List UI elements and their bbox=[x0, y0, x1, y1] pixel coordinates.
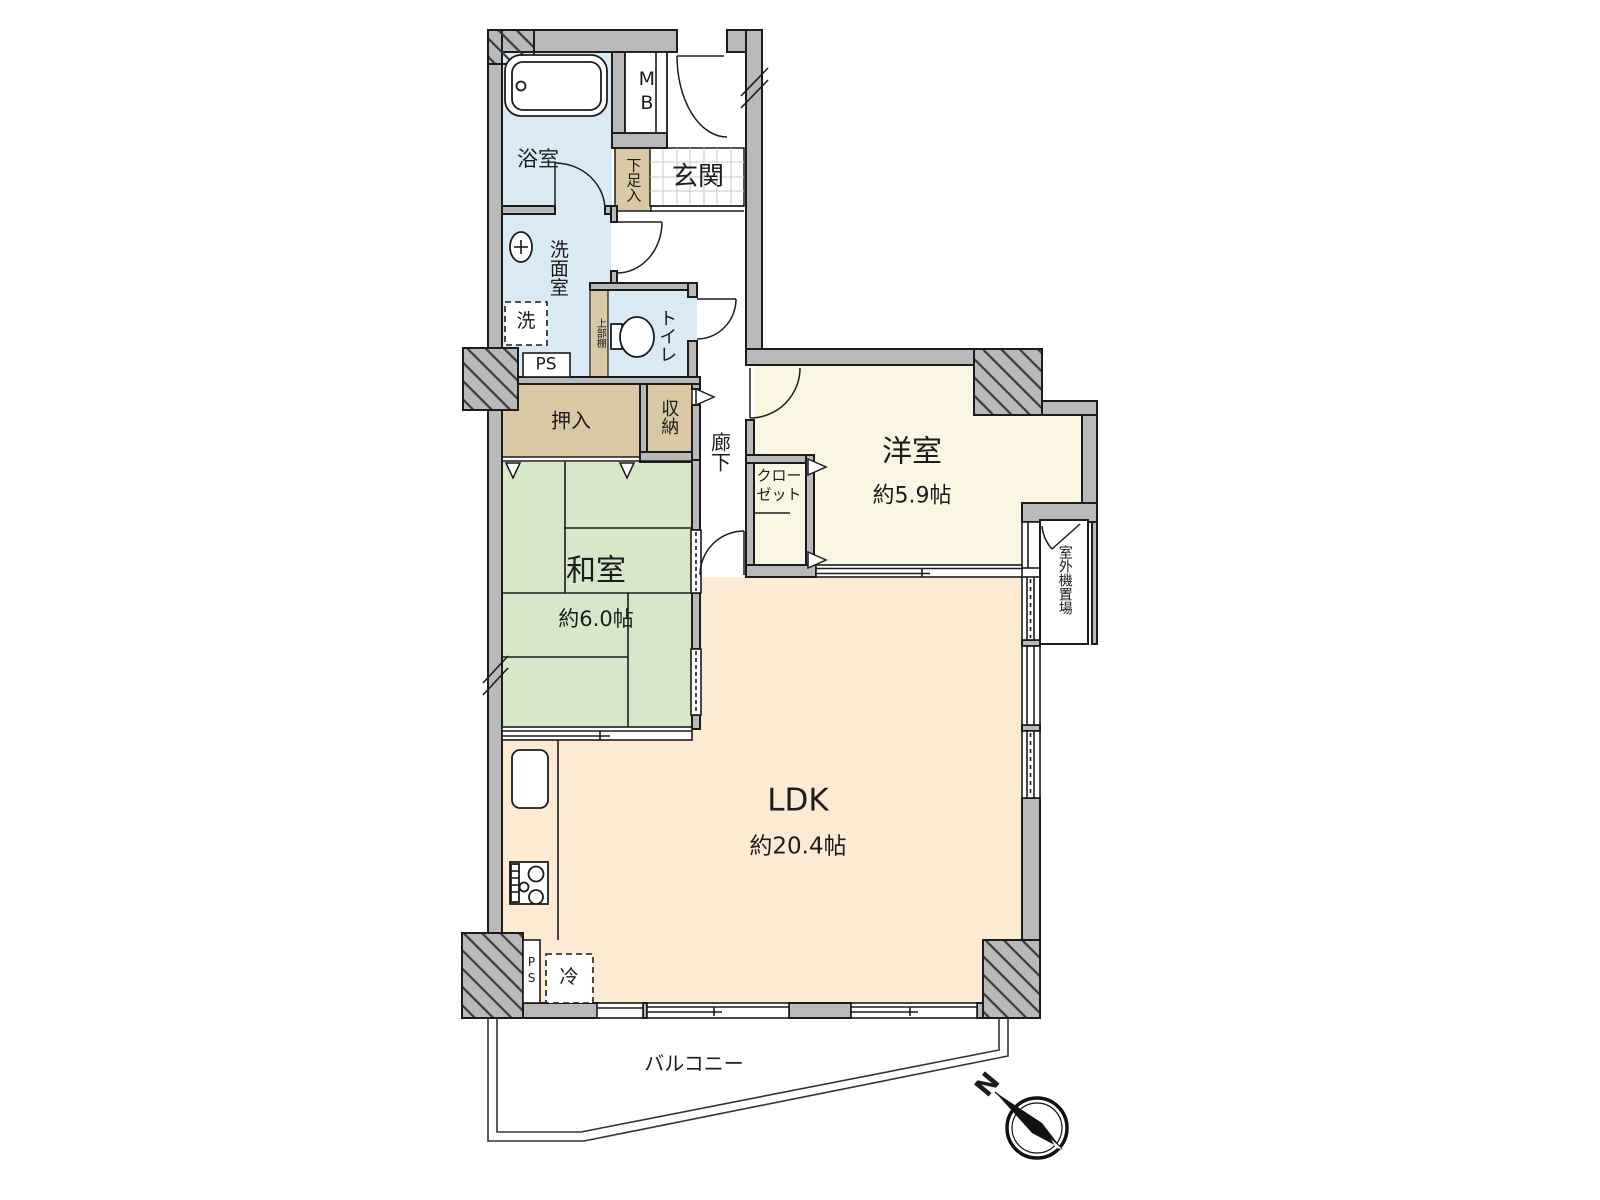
bathtub-drain bbox=[517, 82, 526, 91]
window-bottom-small bbox=[597, 1003, 643, 1018]
stove-grill bbox=[511, 864, 519, 902]
label-storage: 収納 bbox=[657, 399, 680, 435]
toilet-door-arc bbox=[697, 299, 736, 339]
wall-left bbox=[488, 30, 502, 1005]
wall-western-topright bbox=[1041, 401, 1097, 415]
label-ldk-area: 約20.4帖 bbox=[749, 833, 846, 862]
label-hallway: 廊下 bbox=[707, 432, 732, 472]
window-western-right bbox=[1022, 522, 1040, 568]
wall-window-divider-b bbox=[1022, 725, 1040, 731]
wall-bump-left-lower-hatch bbox=[462, 933, 523, 1018]
storage-arrow bbox=[696, 389, 714, 405]
stove-burner-2 bbox=[520, 883, 529, 892]
balcony-outline bbox=[488, 1018, 1008, 1141]
stove-burner-1 bbox=[529, 867, 544, 882]
wall-japanese-right-b bbox=[692, 593, 700, 649]
ldk-floor-main bbox=[692, 577, 1022, 943]
label-japanese-room-area: 約6.0帖 bbox=[558, 606, 633, 632]
wall-corner-topright-hatch bbox=[974, 349, 1042, 415]
washroom-door-arc bbox=[617, 222, 662, 273]
wall-washroom-bottom bbox=[502, 377, 700, 384]
compass bbox=[995, 1092, 1067, 1158]
partition-japanese-ldk bbox=[502, 727, 692, 740]
wall-storage-right-b bbox=[692, 405, 700, 460]
label-ldk: LDK bbox=[767, 782, 828, 821]
ldk-door-arc bbox=[700, 531, 744, 575]
label-shoe-storage: 下足入 bbox=[624, 158, 643, 203]
wall-western-right bbox=[1082, 415, 1097, 505]
label-entrance: 玄関 bbox=[672, 161, 724, 194]
toilet-bowl bbox=[620, 317, 654, 357]
wall-outer-thin-right bbox=[1092, 522, 1097, 644]
wall-oshiire-storage bbox=[640, 384, 647, 460]
label-western-room: 洋室 bbox=[882, 433, 942, 471]
wall-bottom-c bbox=[789, 1003, 851, 1018]
wall-mb-bottom bbox=[612, 133, 667, 148]
label-washroom: 洗面室 bbox=[545, 240, 569, 297]
label-bathroom: 浴室 bbox=[517, 146, 559, 172]
window-balcony-door-left bbox=[647, 1003, 789, 1018]
wall-bottom-a bbox=[523, 1003, 599, 1018]
wall-toilet-right-a bbox=[688, 283, 697, 297]
label-pipe-space-top: PS bbox=[535, 354, 556, 375]
wall-washroom-corridor-b bbox=[611, 271, 617, 283]
label-western-room-area: 約5.9帖 bbox=[873, 482, 952, 510]
wall-toilet-right-b bbox=[688, 341, 697, 378]
label-outdoor-unit-space: 室外機置場 bbox=[1055, 545, 1073, 615]
japanese-room-floor bbox=[502, 462, 692, 727]
wall-vestibule-right bbox=[746, 30, 762, 365]
label-balcony: バルコニー bbox=[644, 1052, 744, 1077]
label-washer: 洗 bbox=[516, 310, 535, 334]
partition-western-ldk bbox=[816, 565, 1022, 577]
entrance-door-arc bbox=[677, 56, 727, 137]
label-upper-shelf: 上部棚 bbox=[593, 318, 606, 348]
wall-japanese-right-c bbox=[692, 715, 700, 729]
label-oshiire: 押入 bbox=[551, 409, 591, 434]
wall-closet-bottom bbox=[746, 565, 816, 577]
wall-toilet-top bbox=[590, 283, 697, 290]
wall-western-top bbox=[746, 349, 976, 365]
label-closet: クローゼット bbox=[754, 466, 804, 504]
wall-window-divider-a bbox=[1022, 640, 1040, 646]
wall-western-left bbox=[746, 420, 754, 572]
wall-bath-washroom-a bbox=[502, 206, 555, 214]
wall-bump-left-upper-hatch bbox=[463, 348, 518, 410]
label-refrigerator: 冷 bbox=[559, 966, 578, 990]
wall-ldk-right bbox=[1022, 798, 1040, 943]
wall-corner-bottomright-hatch bbox=[983, 940, 1040, 1018]
label-meter-box: MB bbox=[634, 68, 658, 116]
window-right-2 bbox=[1022, 646, 1040, 725]
floor-plan: 浴室 MB 玄関 下足入 洗面室 洗 PS トイレ 上部棚 押入 収納 廊下 ク… bbox=[0, 0, 1600, 1200]
kitchen-sink bbox=[512, 750, 548, 808]
floor-plan-drawing bbox=[0, 0, 1600, 1200]
label-pipe-space-bottom: PS bbox=[524, 955, 539, 987]
stove-burner-3 bbox=[529, 890, 543, 904]
wall-washroom-corridor-a bbox=[611, 206, 617, 222]
window-balcony-door-right bbox=[851, 1003, 977, 1018]
wall-japanese-right-a bbox=[692, 460, 700, 530]
label-toilet: トイレ bbox=[655, 309, 678, 363]
balcony-outer-line bbox=[488, 1018, 1008, 1141]
ldk-floor-lower bbox=[692, 943, 983, 1003]
balcony-inner-line bbox=[497, 1018, 999, 1132]
label-japanese-room: 和室 bbox=[566, 552, 626, 590]
wall-closet-top bbox=[746, 455, 814, 463]
